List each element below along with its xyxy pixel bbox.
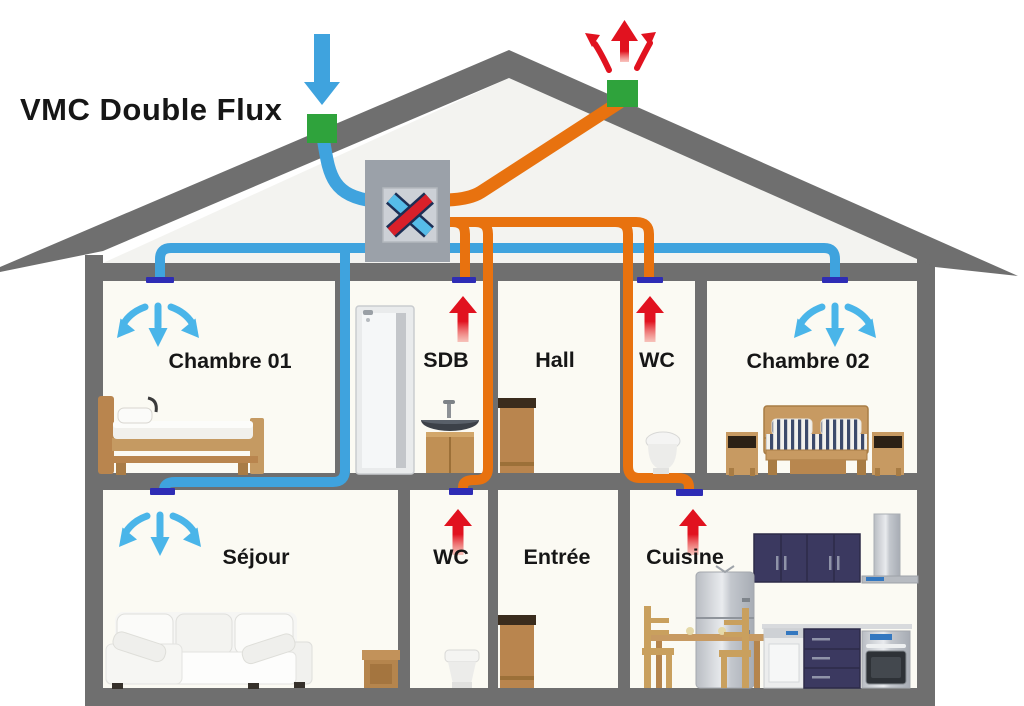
side-table-icon (362, 650, 400, 688)
house-cross-section: VMC Double Flux Chambre 01 SDB Hall WC C… (0, 0, 1024, 706)
room-label-wc-haut: WC (639, 348, 675, 372)
oven-icon (862, 631, 910, 688)
diffuser-sdb (452, 277, 476, 283)
room-label-hall: Hall (535, 348, 574, 372)
dishwasher-icon (764, 629, 804, 688)
nightstand-right-icon (872, 432, 904, 476)
diagram-title: VMC Double Flux (20, 92, 283, 127)
diffuser-wc-bas (449, 488, 473, 495)
diffuser-cuisine (676, 489, 703, 496)
room-label-entree: Entrée (524, 545, 591, 569)
wall-wc-chambre02 (695, 281, 707, 473)
room-label-chambre01: Chambre 01 (168, 349, 291, 373)
sofa-icon (106, 612, 312, 689)
wall-wc-entree (488, 490, 498, 688)
hall-cabinet-icon (498, 398, 536, 473)
entree-cabinet-icon (498, 615, 536, 688)
room-label-chambre02: Chambre 02 (746, 349, 869, 373)
right-exterior-wall (917, 252, 935, 688)
shower-icon (356, 306, 414, 474)
heat-exchanger-unit (365, 160, 450, 262)
nightstand-left-icon (726, 432, 758, 476)
diffuser-chambre02 (822, 277, 848, 283)
diffuser-wc-haut (637, 277, 663, 283)
room-label-cuisine: Cuisine (646, 545, 724, 569)
vmc-double-flux-diagram: VMC Double Flux Chambre 01 SDB Hall WC C… (0, 0, 1024, 706)
diffuser-sejour (150, 488, 175, 495)
diffuser-chambre01 (146, 277, 174, 283)
room-label-sdb: SDB (423, 348, 468, 372)
base-band (85, 688, 935, 706)
room-label-wc-bas: WC (433, 545, 469, 569)
air-intake-roof-vent (307, 114, 337, 143)
ceiling-band (85, 263, 935, 281)
room-label-sejour: Séjour (223, 545, 291, 569)
wall-entree-cuisine (618, 490, 630, 688)
wall-cabinet-icon (754, 534, 860, 582)
air-exhaust-roof-vent (607, 80, 638, 107)
base-cabinet-icon (804, 629, 860, 688)
